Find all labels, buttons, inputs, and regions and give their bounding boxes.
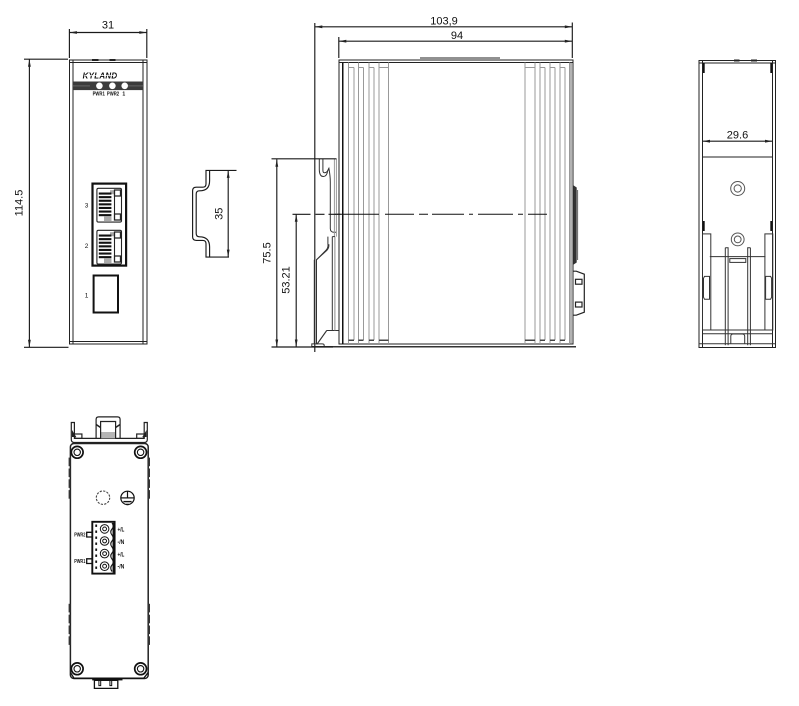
svg-text:29.6: 29.6: [727, 130, 748, 142]
svg-text:+/L: +/L: [118, 528, 125, 534]
svg-text:1: 1: [122, 92, 125, 98]
svg-text:31: 31: [102, 20, 114, 32]
svg-text:PWR2: PWR2: [107, 92, 119, 98]
svg-text:75.5: 75.5: [262, 242, 274, 263]
svg-text:+/L: +/L: [118, 552, 125, 558]
svg-text:PWR1: PWR1: [74, 559, 85, 565]
svg-text:PWR2: PWR2: [74, 532, 85, 538]
svg-text:114.5: 114.5: [14, 190, 26, 217]
svg-text:3: 3: [85, 203, 89, 210]
svg-text:-/N: -/N: [118, 540, 125, 546]
svg-text:103,9: 103,9: [430, 15, 458, 27]
svg-text:35: 35: [214, 208, 226, 220]
svg-text:PWR1: PWR1: [93, 92, 105, 98]
svg-text:2: 2: [85, 243, 89, 250]
svg-text:-/N: -/N: [118, 565, 125, 571]
svg-text:94: 94: [451, 30, 463, 42]
svg-text:53.21: 53.21: [281, 266, 293, 294]
svg-text:1: 1: [85, 293, 89, 300]
